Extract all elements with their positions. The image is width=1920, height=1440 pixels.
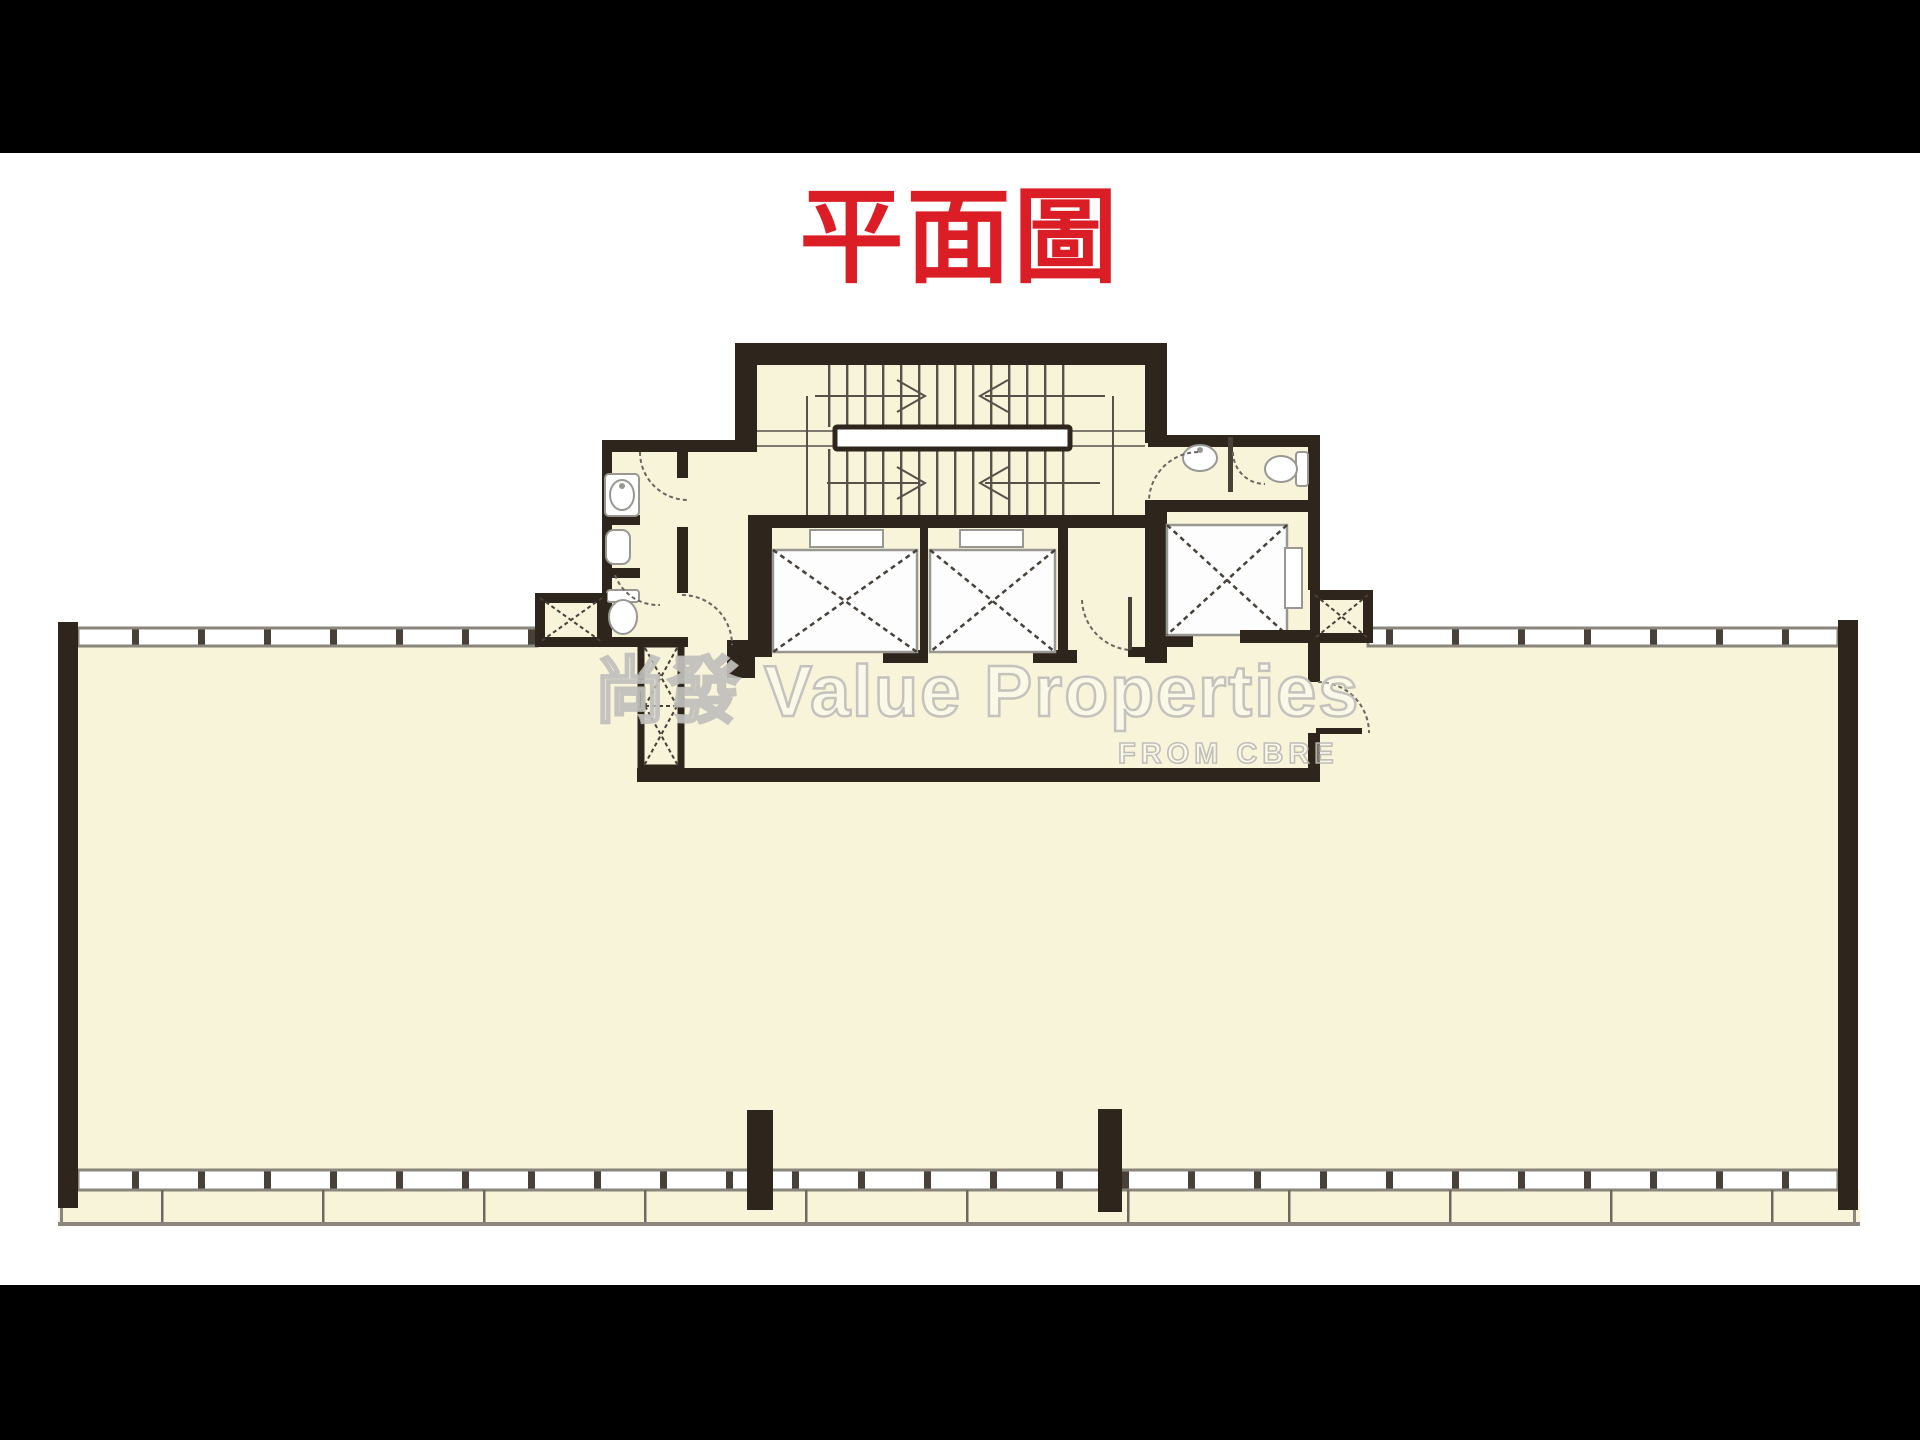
watermark: 尚發 Value Properties (594, 656, 1360, 728)
window-band-top-left (78, 628, 537, 646)
service-lift-door (1285, 548, 1302, 608)
watermark-latin: Value Properties (764, 652, 1360, 732)
floorplan-page: 平面圖 尚發 Value Properties FROM CBRE (0, 0, 1920, 1440)
door-leaf-lobby-right (1128, 597, 1132, 650)
column-interior-right (1098, 1109, 1122, 1212)
letterbox-bar-top (0, 0, 1920, 153)
lift-door-2 (960, 530, 1023, 547)
window-band-top-right (1368, 628, 1838, 646)
parapet-ledge (58, 1190, 1860, 1226)
air-shaft-right (1315, 595, 1368, 638)
column-left (58, 622, 78, 1208)
lift-door-1 (810, 530, 883, 547)
urinal-left (606, 530, 630, 564)
column-right (1838, 620, 1858, 1210)
toilet-bowl-right (1265, 456, 1297, 482)
watermark-subtext: FROM CBRE (1118, 740, 1339, 769)
column-interior-left (747, 1110, 773, 1210)
letterbox-bar-bottom (0, 1285, 1920, 1440)
stair-landing (835, 427, 1070, 449)
window-band-bottom (78, 1170, 1838, 1190)
watermark-cjk: 尚發 (594, 652, 742, 732)
air-shaft-left (540, 598, 602, 642)
page-title: 平面圖 (0, 186, 1920, 290)
toilet-bowl-left (609, 600, 637, 634)
